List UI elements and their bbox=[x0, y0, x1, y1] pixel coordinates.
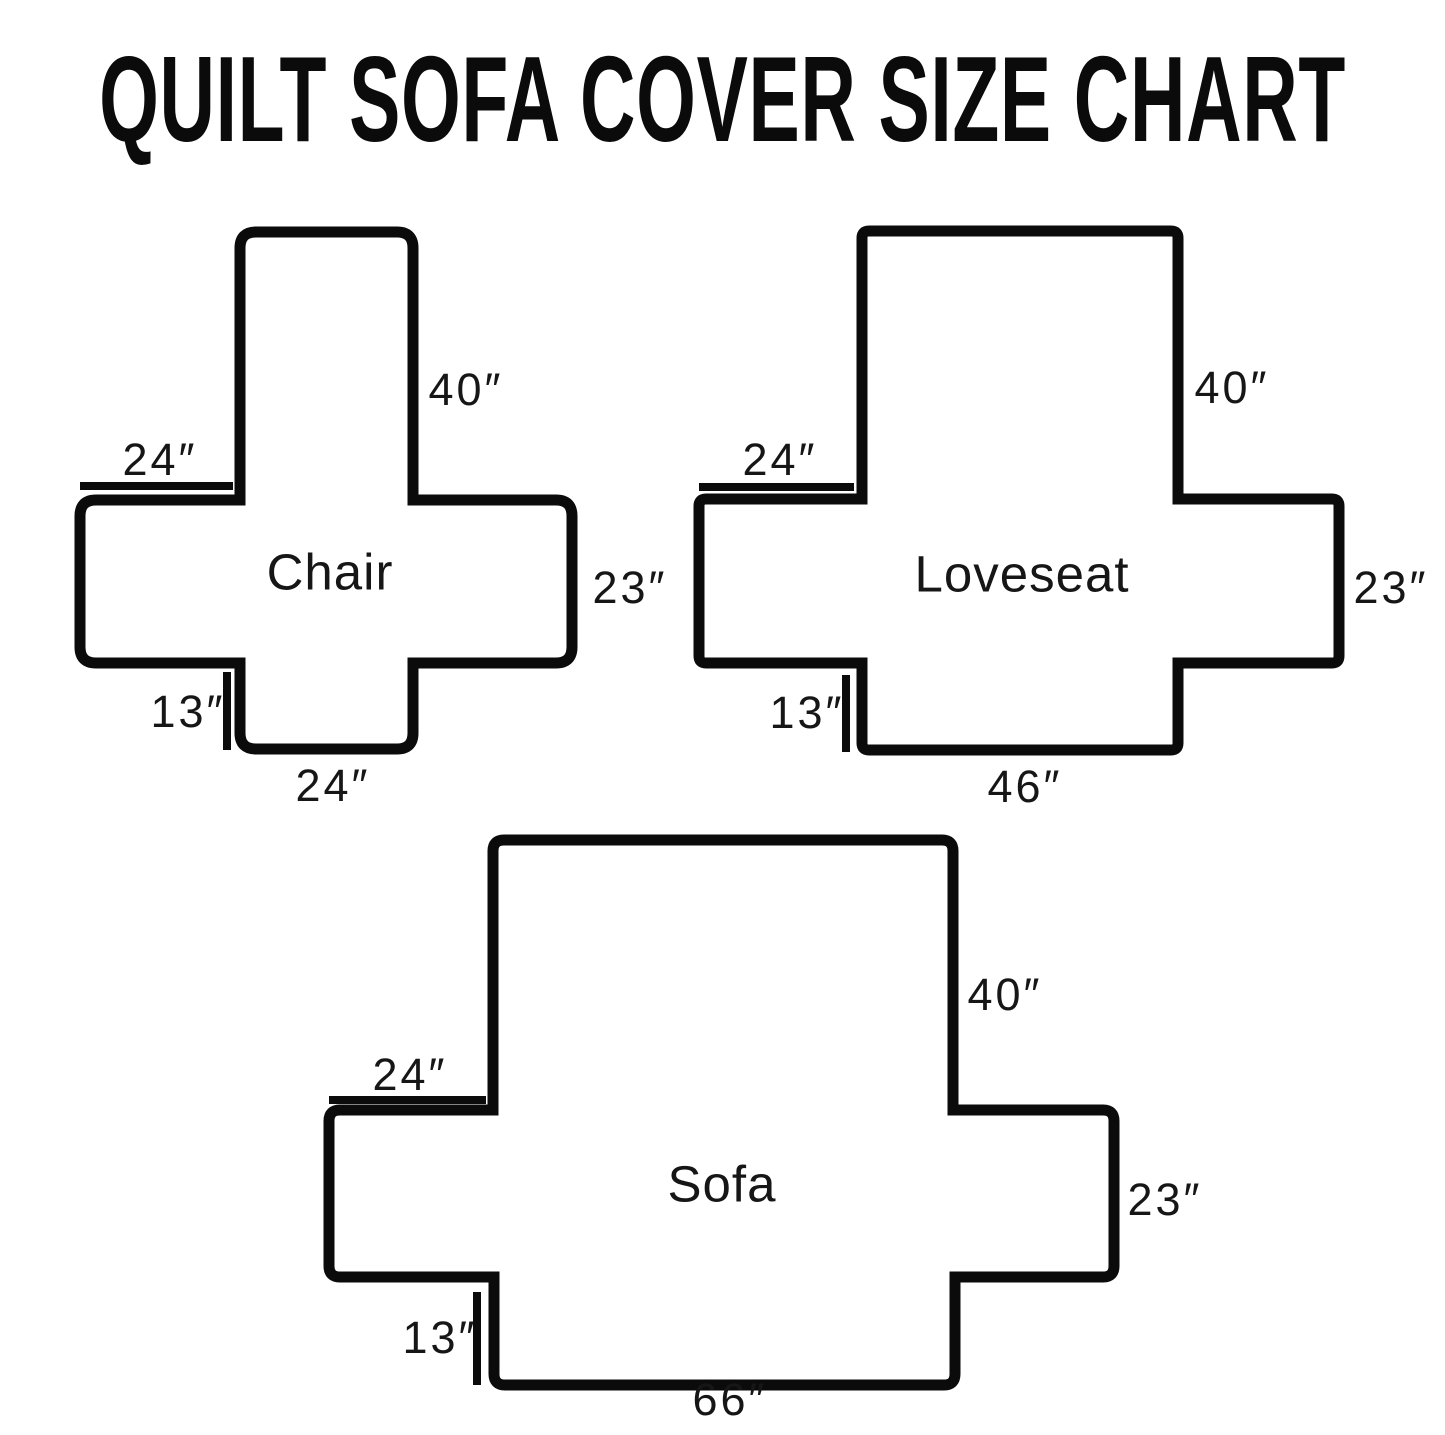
loveseat-skirt-dimension-line bbox=[842, 675, 850, 752]
chair-cover-outline bbox=[80, 232, 572, 749]
sofa-cover-outline bbox=[329, 840, 1114, 1385]
sofa-arm-top-dimension-line bbox=[329, 1096, 486, 1104]
chair-skirt-dimension-line bbox=[223, 672, 231, 750]
loveseat-arm-top-dimension-line bbox=[699, 483, 854, 491]
cover-outline-drawings bbox=[0, 0, 1445, 1435]
sofa-skirt-dimension-line bbox=[473, 1292, 481, 1385]
chair-arm-top-dimension-line bbox=[80, 482, 233, 490]
quilt-sofa-cover-size-chart: QUILT SOFA COVER SIZE CHART 40″ 24″ Chai… bbox=[0, 0, 1445, 1435]
